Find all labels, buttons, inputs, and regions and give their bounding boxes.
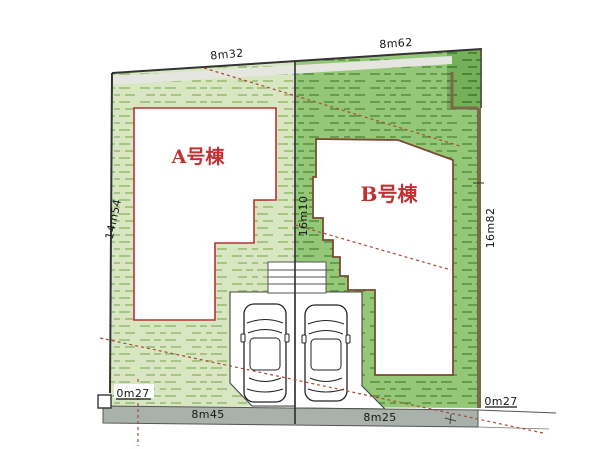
road-edge-extension-bottom — [478, 427, 549, 429]
dim-corner-right: 0m27 — [484, 395, 517, 408]
dim-center: 16m10 — [297, 196, 310, 237]
dim-road-right: 8m25 — [363, 411, 396, 424]
site-plan-screenshot: A号棟 B号棟 8m32 8m62 14m54 16m10 16m82 8m45… — [0, 0, 600, 449]
dim-road-left: 8m45 — [191, 408, 224, 421]
dim-top-left: 8m32 — [210, 47, 244, 63]
building-b-label: B号棟 — [361, 182, 419, 206]
building-a-label: A号棟 — [171, 145, 226, 168]
corner-jog-left — [98, 395, 111, 408]
road-surface — [103, 406, 478, 427]
dim-right: 16m82 — [484, 208, 497, 249]
site-plan-svg: A号棟 B号棟 8m32 8m62 14m54 16m10 16m82 8m45… — [0, 0, 600, 449]
car-b — [302, 305, 350, 401]
dim-corner-left: 0m27 — [116, 387, 149, 400]
dim-top-right: 8m62 — [379, 36, 413, 51]
entrance-steps — [268, 262, 326, 293]
road-edge-extension-top — [478, 410, 556, 413]
car-a — [241, 304, 289, 402]
